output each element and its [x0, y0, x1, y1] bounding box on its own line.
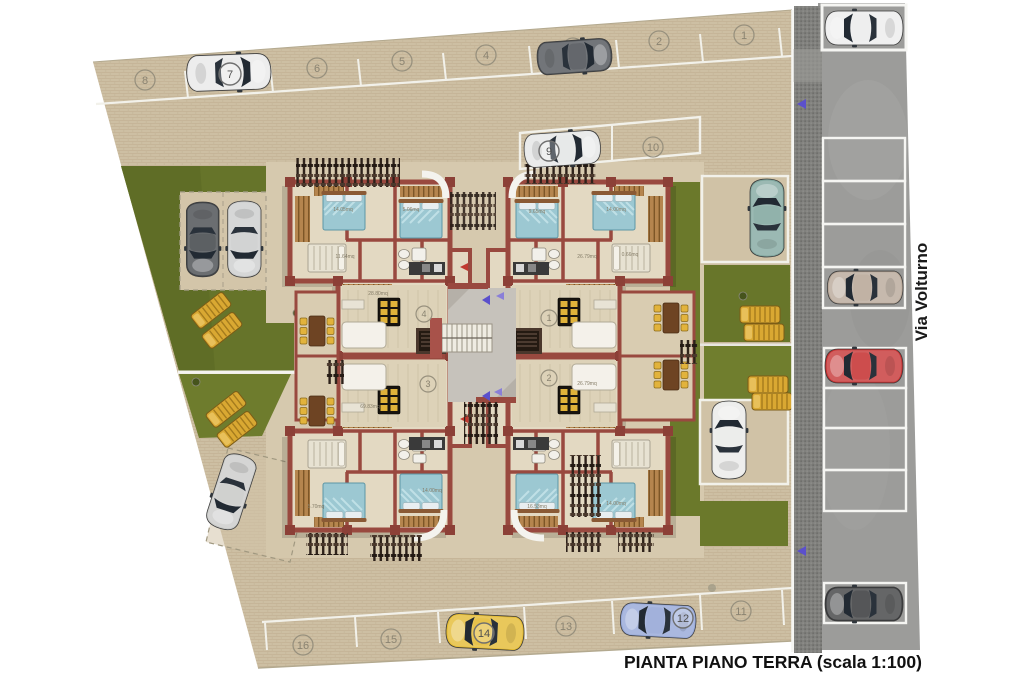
svg-text:5.70mq: 5.70mq: [308, 504, 325, 510]
svg-text:6: 6: [314, 63, 320, 75]
svg-text:PIANTA PIANO TERRA (scala 1:10: PIANTA PIANO TERRA (scala 1:100): [624, 652, 922, 672]
svg-text:28.80mq: 28.80mq: [368, 291, 388, 297]
svg-text:14.00mq: 14.00mq: [606, 207, 626, 213]
svg-text:11.64mq: 11.64mq: [335, 254, 354, 260]
svg-text:7: 7: [227, 69, 233, 81]
svg-text:5.06mq: 5.06mq: [403, 207, 420, 213]
svg-text:4: 4: [421, 309, 426, 319]
svg-text:Via Volturno: Via Volturno: [912, 243, 931, 342]
svg-text:8: 8: [142, 75, 148, 87]
svg-text:0.66mq: 0.66mq: [622, 252, 639, 258]
svg-text:14: 14: [478, 628, 490, 640]
svg-text:13: 13: [560, 621, 572, 633]
svg-text:1: 1: [546, 313, 551, 323]
svg-text:11: 11: [735, 606, 746, 618]
svg-text:12: 12: [677, 613, 689, 625]
svg-text:2: 2: [546, 373, 551, 383]
svg-text:10: 10: [647, 142, 659, 154]
svg-text:26.79mq: 26.79mq: [577, 254, 597, 260]
svg-text:14.00mq: 14.00mq: [422, 488, 442, 494]
svg-text:9.65mq: 9.65mq: [529, 209, 546, 215]
svg-text:1: 1: [741, 30, 747, 42]
svg-text:14.00mq: 14.00mq: [606, 501, 626, 507]
svg-text:2: 2: [656, 36, 662, 48]
svg-text:4: 4: [483, 50, 489, 62]
svg-text:15: 15: [385, 634, 397, 646]
svg-text:26.79mq: 26.79mq: [577, 381, 597, 387]
svg-text:3: 3: [425, 379, 430, 389]
svg-text:9: 9: [546, 146, 552, 158]
svg-text:16: 16: [297, 640, 309, 652]
svg-text:16.53mq: 16.53mq: [527, 504, 547, 510]
svg-text:14.05mq: 14.05mq: [333, 207, 353, 213]
svg-text:5: 5: [399, 56, 405, 68]
svg-text:69.83mq: 69.83mq: [360, 404, 380, 410]
